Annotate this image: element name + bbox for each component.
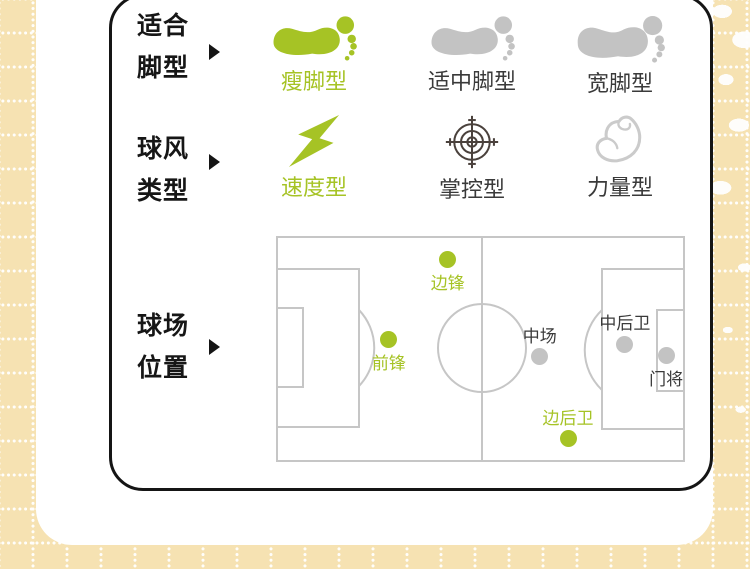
item-thin-foot: 瘦脚型 [239,15,389,96]
position-label: 门将 [649,365,683,390]
lightning-icon [281,115,347,167]
arrow-right-icon [209,339,220,355]
position-dot [380,331,397,348]
info-card: 适合 脚型 瘦脚型 适中脚型 [109,0,713,491]
row-label-line2: 脚型 [137,47,189,89]
position-dot [658,347,675,364]
row-label-line1: 适合 [137,5,189,47]
row-label-line2: 类型 [137,170,189,212]
row-label-play-style: 球风 类型 [137,128,189,212]
muscle-icon [590,115,650,167]
content-panel: 适合 脚型 瘦脚型 适中脚型 [36,0,713,545]
position-dot [616,336,633,353]
item-label: 力量型 [545,170,695,202]
position-label: 中后卫 [599,309,650,334]
footprint-icon [262,15,366,61]
item-control-style: 掌控型 [397,115,547,204]
item-power-style: 力量型 [545,115,695,202]
item-wide-foot: 宽脚型 [545,15,695,98]
item-label: 宽脚型 [545,66,695,98]
soccer-field-diagram: 边锋前锋中场中后卫门将边后卫 [276,236,685,462]
target-icon [445,115,499,169]
row-label-line1: 球场 [137,305,189,347]
position-label: 中场 [523,322,557,347]
position-dot [439,251,456,268]
row-label-line2: 位置 [137,347,189,389]
footprint-icon [420,15,524,61]
item-label: 速度型 [239,170,389,202]
position-label: 前锋 [372,349,406,374]
item-label: 适中脚型 [397,64,547,96]
item-label: 掌控型 [397,172,547,204]
position-label: 边锋 [431,269,465,294]
position-dot [560,430,577,447]
arrow-right-icon [209,154,220,170]
item-medium-foot: 适中脚型 [397,15,547,96]
item-label: 瘦脚型 [239,64,389,96]
row-label-foot-type: 适合 脚型 [137,5,189,89]
row-label-line1: 球风 [137,128,189,170]
arrow-right-icon [209,44,220,60]
position-label: 边后卫 [543,404,594,429]
row-label-field-position: 球场 位置 [137,305,189,389]
item-speed-style: 速度型 [239,115,389,202]
footprint-icon [568,15,672,63]
